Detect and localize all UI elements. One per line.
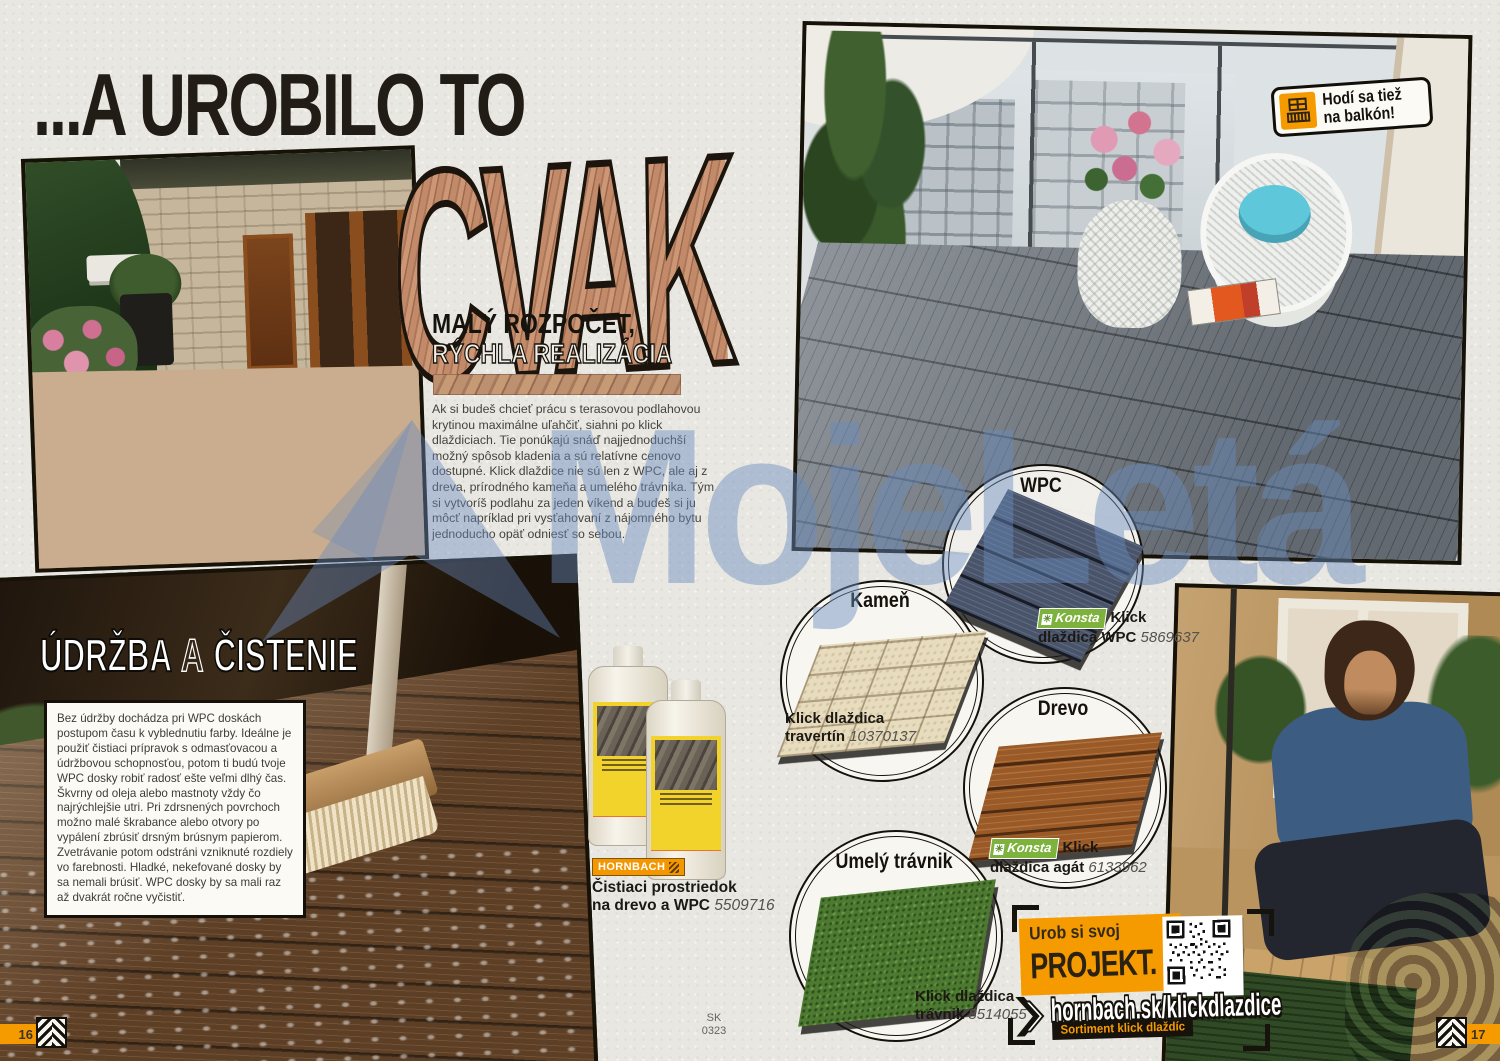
project-promo-box: Urob si svoj PROJEKT. (1019, 913, 1184, 996)
product-sku: 6133962 (1088, 859, 1146, 876)
cleaner-bottles-image (588, 646, 778, 864)
konsta-leaf-icon: ✳ (1041, 614, 1053, 625)
brand-name: HORNBACH (598, 861, 665, 873)
house-window (243, 234, 298, 371)
project-line2: PROJEKT. (1030, 942, 1138, 988)
product-sku: 5509716 (714, 897, 774, 914)
chevron-icon (1013, 993, 1046, 1045)
bottle-label (651, 736, 721, 840)
maintenance-title-part2: ČISTENIE (214, 629, 358, 681)
product-name: Klick (1110, 609, 1146, 626)
maintenance-title: ÚDRŽBA A ČISTENIE (40, 628, 358, 682)
product-sku: 10370137 (849, 728, 916, 745)
intro-paragraph: Ak si budeš chcieť prácu s terasovou pod… (432, 402, 722, 542)
product-name: trávnik (915, 1006, 964, 1023)
catalog-spread: ...A UROBILO TO CVAK MALÝ ROZPOČET, RÝCH… (0, 0, 1500, 1061)
product-name: Klick dlaždica (915, 988, 1014, 1005)
subtitle-line1: MALÝ ROZPOČET, (432, 308, 635, 340)
subtitle-line2: RÝCHLA REALIZÁCIA (432, 338, 672, 370)
maintenance-text-box: Bez údržby dochádza pri WPC doskách post… (44, 700, 306, 918)
product-label-stone: Klick dlaždica travertín 10370137 (785, 710, 916, 746)
hornbach-hatch-icon (669, 862, 679, 873)
hornbach-logo: HORNBACH (592, 858, 685, 876)
frame-bracket (1247, 909, 1274, 936)
maintenance-body: Bez údržby dochádza pri WPC doskách post… (57, 712, 293, 906)
footer-country: SK (682, 1012, 746, 1025)
product-name: dlaždica agát (990, 859, 1084, 876)
maintenance-title-conj: A (180, 629, 205, 681)
product-name: Čistiaci prostriedok (592, 879, 775, 897)
product-name: na drevo a WPC (592, 897, 710, 914)
paved-terrace-floor (22, 365, 429, 572)
product-label-wood: ✳KonstaKlick dlaždica agát 6133962 (990, 838, 1147, 877)
product-label-wpc: ✳KonstaKlick dlaždica WPC 5869637 (1038, 608, 1199, 647)
product-name: Klick (1062, 839, 1098, 856)
category-label-wood: Drevo (978, 697, 1148, 721)
product-sku: 5869637 (1141, 629, 1199, 646)
terrace-house-photo (21, 145, 429, 572)
footer-code: SK 0323 (682, 1012, 746, 1038)
brand-name: Konsta (1006, 840, 1052, 855)
man-face (1343, 650, 1397, 715)
konsta-logo: ✳Konsta (1037, 608, 1108, 629)
cleaner-bottle (646, 680, 726, 880)
page-number-left: 16 (0, 1024, 37, 1044)
maintenance-title-part1: ÚDRŽBA (40, 629, 171, 681)
wood-texture-bar (433, 374, 681, 395)
wicker-table (1076, 199, 1183, 329)
konsta-logo: ✳Konsta (989, 838, 1060, 859)
product-name: dlaždica WPC (1038, 629, 1136, 646)
product-name: Klick dlaždica (785, 710, 884, 727)
page-number-right: 17 (1467, 1024, 1500, 1044)
project-line1: Urob si svoj (1029, 919, 1155, 944)
product-label-cleaner: Čistiaci prostriedok na drevo a WPC 5509… (592, 879, 775, 915)
category-label-grass: Umelý trávnik (805, 850, 984, 874)
qr-code (1162, 915, 1243, 996)
category-label-stone: Kameň (795, 589, 965, 613)
balcony-icon (1279, 92, 1317, 130)
hornbach-hatch-icon (36, 1017, 67, 1048)
flower-bouquet (1061, 93, 1203, 211)
category-label-wpc: WPC (957, 474, 1125, 498)
footer-number: 0323 (682, 1025, 746, 1038)
brand-name: Konsta (1054, 610, 1100, 625)
hornbach-hatch-icon (1436, 1017, 1467, 1048)
frame-bracket (1012, 905, 1039, 932)
konsta-leaf-icon: ✳ (993, 844, 1005, 855)
badge-line2: na balkón! (1323, 103, 1396, 127)
badge-text: Hodí sa tiež na balkón! (1322, 86, 1404, 127)
product-name: travertín (785, 728, 845, 745)
